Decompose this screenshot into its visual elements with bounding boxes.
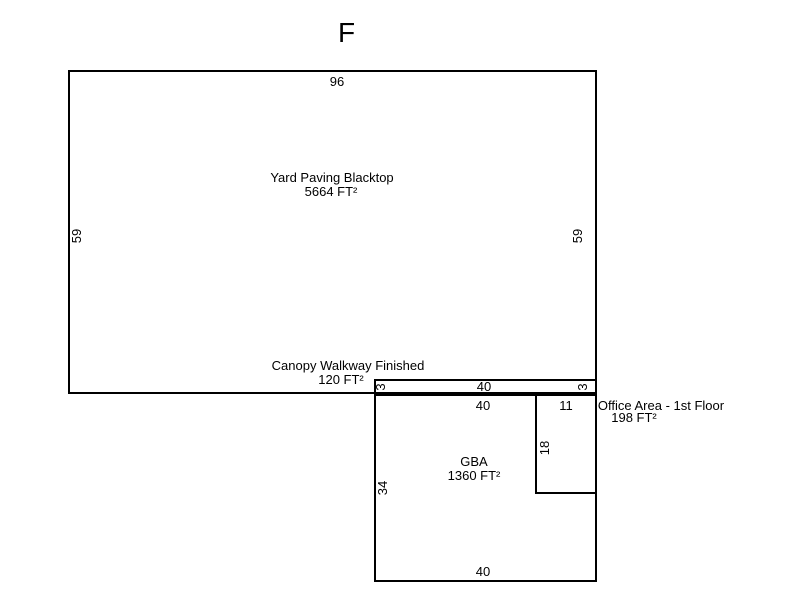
- dim-canopy-right: 3: [576, 383, 590, 390]
- gba-area-value: 1360 FT²: [448, 469, 501, 483]
- yard-paving-outline: [68, 70, 597, 394]
- sketch-title: F: [338, 17, 356, 49]
- yard-area-value: 5664 FT²: [305, 185, 358, 199]
- dim-office-height: 18: [538, 441, 552, 455]
- yard-label: Yard Paving Blacktop: [270, 171, 393, 185]
- floor-plan-sketch: F 96 59 59 Yard Paving Blacktop 5664 FT²…: [0, 0, 800, 600]
- dim-canopy-left: 3: [374, 383, 388, 390]
- dim-yard-right: 59: [571, 229, 585, 243]
- office-divider-horizontal: [535, 492, 597, 494]
- dim-gba-top: 40: [476, 399, 490, 413]
- canopy-area-value: 120 FT²: [318, 373, 364, 387]
- canopy-label: Canopy Walkway Finished: [272, 359, 425, 373]
- gba-label: GBA: [460, 455, 487, 469]
- dim-yard-top: 96: [330, 75, 344, 89]
- dim-gba-left: 34: [376, 481, 390, 495]
- office-area-value: 198 FT²: [611, 411, 657, 425]
- dim-office-top: 11: [559, 399, 573, 413]
- dim-gba-bottom: 40: [476, 565, 490, 579]
- dim-yard-left: 59: [70, 229, 84, 243]
- gba-outline: [374, 394, 597, 582]
- dim-canopy-top: 40: [477, 380, 491, 394]
